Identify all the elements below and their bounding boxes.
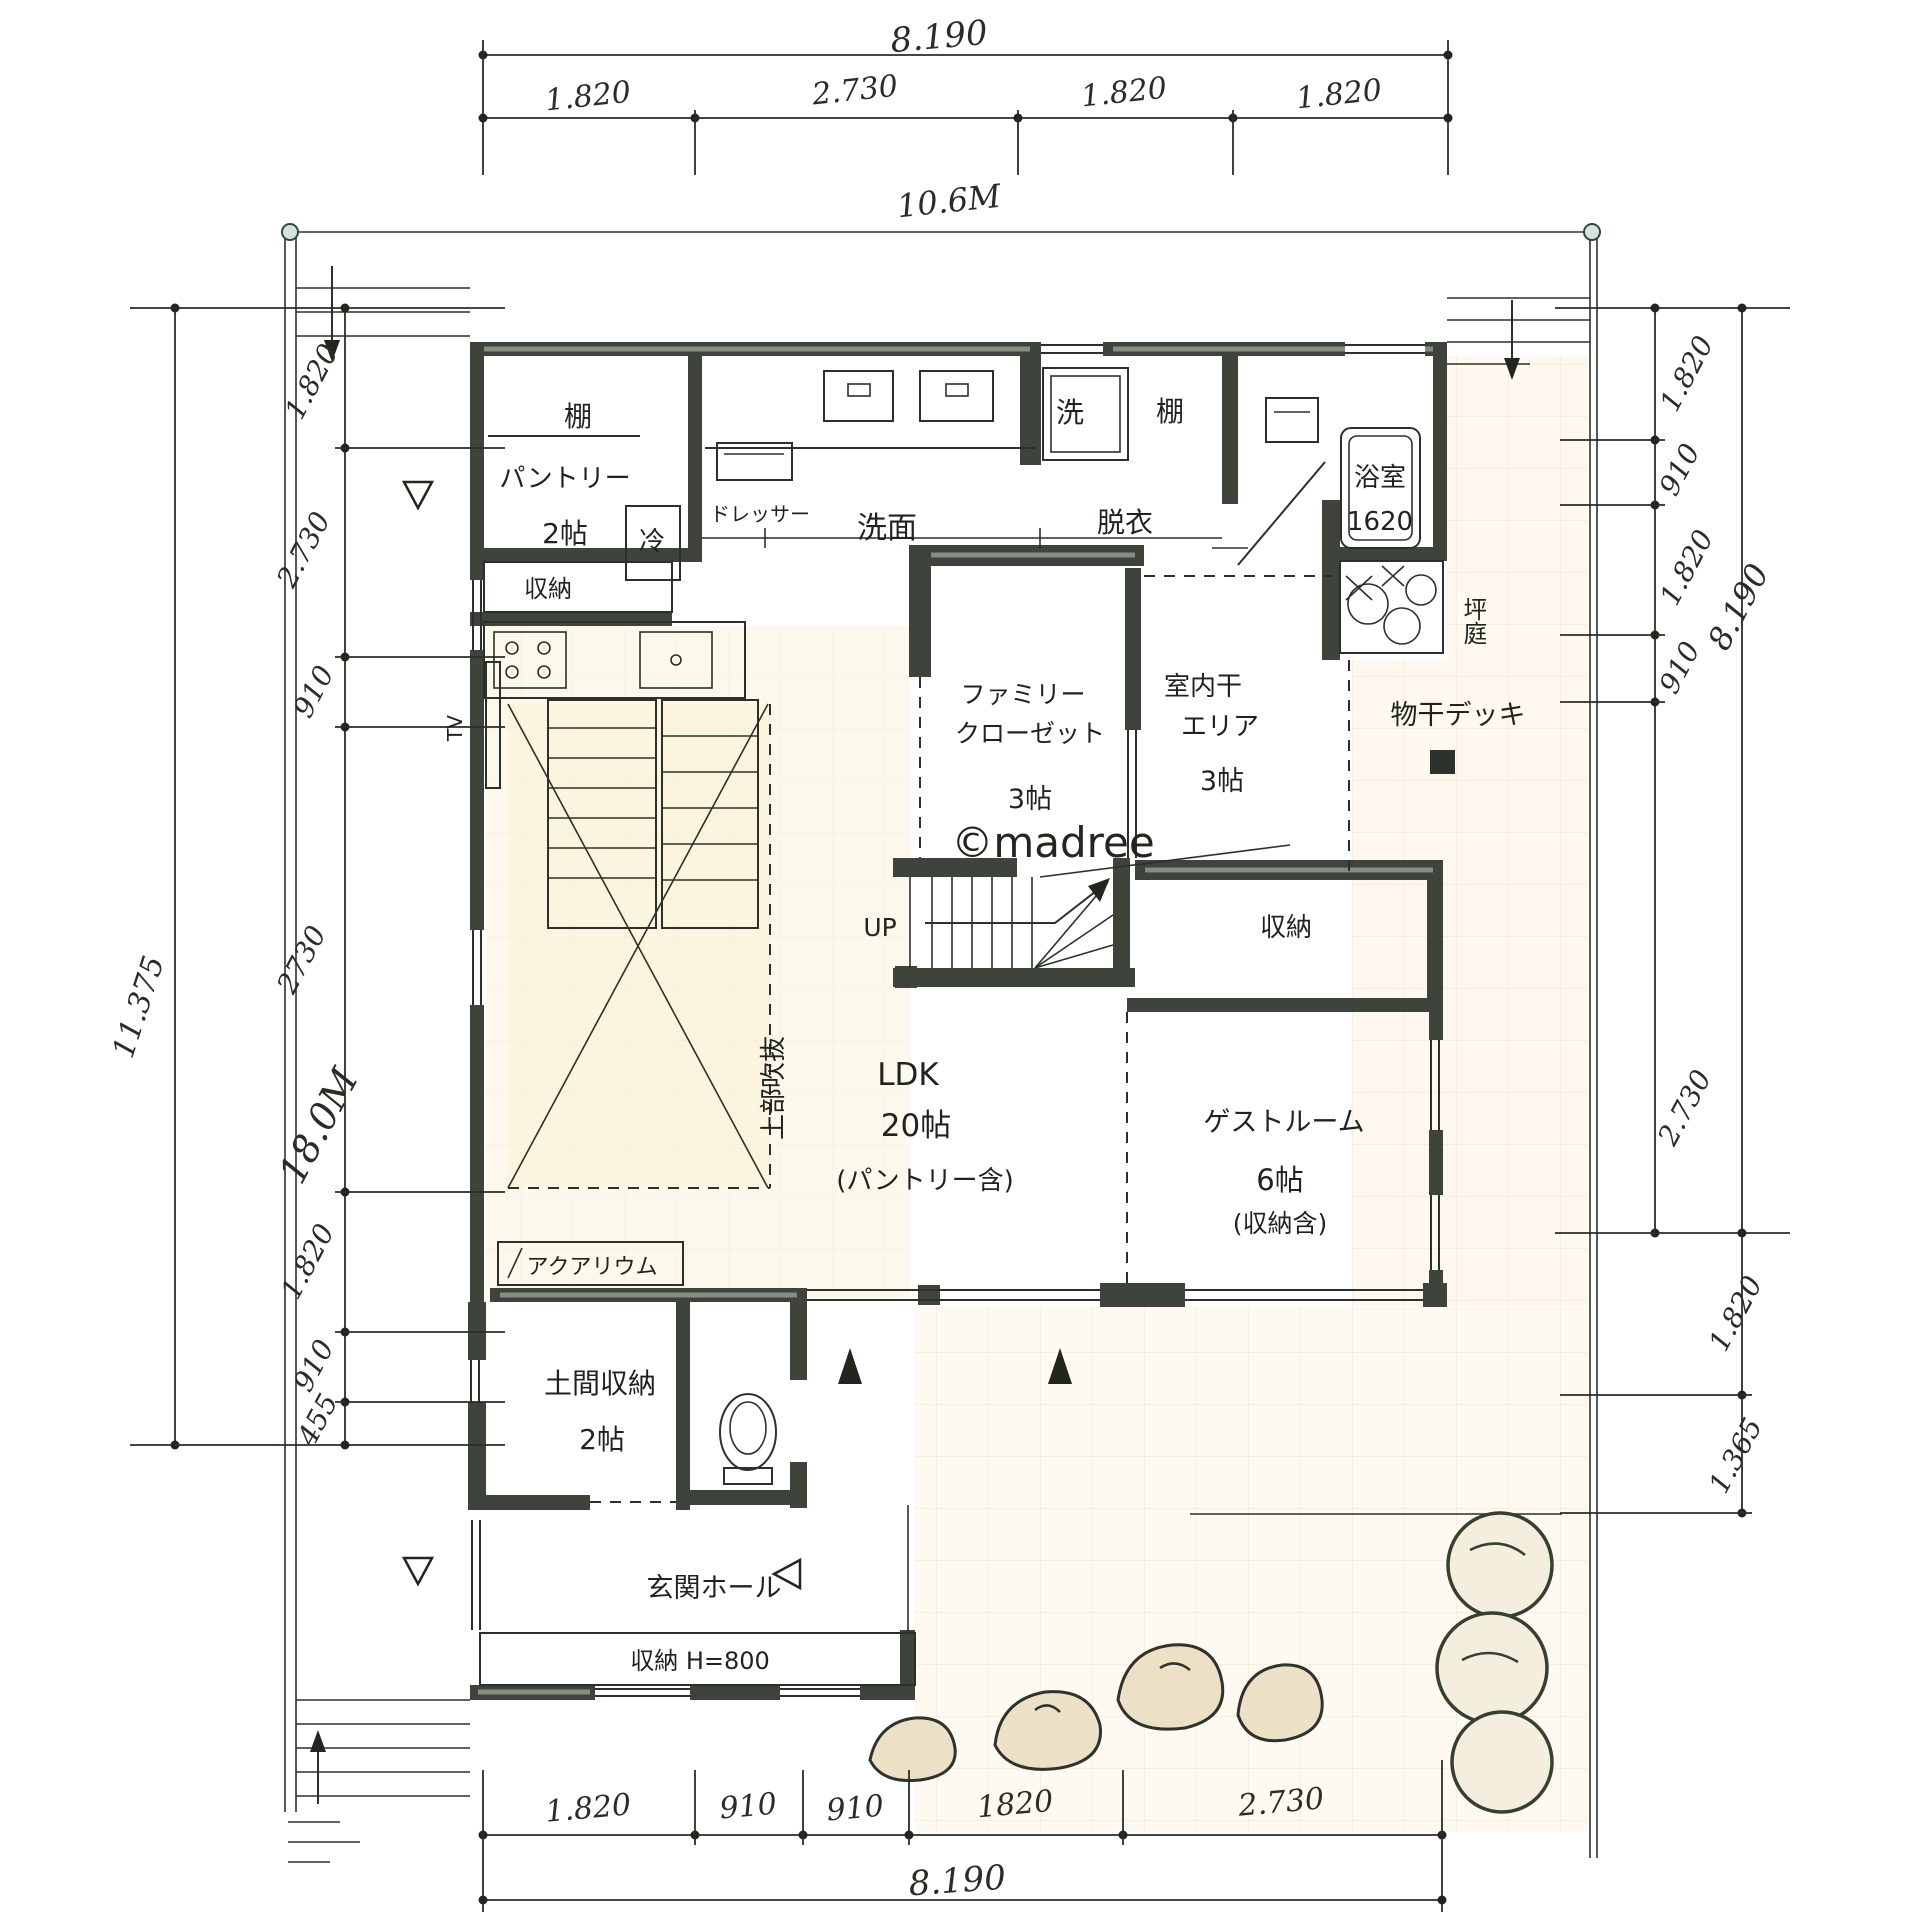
room-label-entrance-hall: 玄関ホール (647, 1573, 782, 1604)
room-label-storage-pantry: 収納 (524, 575, 572, 603)
room-label-courtyard: 坪庭 (1446, 566, 1486, 676)
room-label-doma-size: 2帖 (579, 1423, 625, 1456)
section-marker-icon (404, 482, 432, 508)
room-label-indoor-drying-1: 室内干 (1164, 672, 1242, 702)
room-label-shelf-pantry: 棚 (564, 400, 592, 433)
room-label-family-closet-size: 3帖 (1008, 784, 1052, 815)
bush (1452, 1712, 1552, 1812)
approach-arrow-bottom-left-icon (310, 1730, 326, 1752)
room-label-doma: 土間収納 (544, 1367, 656, 1400)
room-label-fridge: 冷 (639, 527, 665, 557)
room-label-aquarium: アクアリウム (527, 1255, 658, 1280)
toilet-icon (720, 1394, 776, 1484)
floor-tints (486, 356, 1588, 1832)
room-label-storage-stairs: 収納 (1260, 913, 1312, 943)
dim-right-lower-seg-1: 1.820 (1702, 1270, 1769, 1356)
dim-left-seg-1: 1.820 (278, 338, 345, 424)
floor-plan-drawing: 8.190 1.820 2.730 1.820 1.820 10.6M 1.82… (0, 0, 1912, 1912)
room-label-ldk-size: 20帖 (881, 1108, 951, 1144)
bath-door-leaf (1238, 462, 1325, 565)
dim-bottom-seg-3: 910 (825, 1789, 885, 1829)
section-marker-icon (404, 1558, 432, 1584)
dim-left-seg-4: 2730 (270, 920, 333, 999)
dim-top-seg-4: 1.820 (1294, 73, 1383, 117)
dim-right-seg-5: 2.730 (1651, 1064, 1718, 1151)
room-label-family-closet-1: ファミリー (960, 680, 1085, 709)
pantry-storage-strip (484, 562, 672, 612)
room-label-stairs-up: UP (863, 913, 896, 942)
dim-top-total: 8.190 (889, 13, 989, 61)
rock (870, 1718, 955, 1781)
dim-left-seg-7: 455 (290, 1388, 345, 1452)
room-label-shelf-right: 棚 (1156, 395, 1184, 428)
dim-left-seg-2: 2.730 (270, 506, 337, 593)
dim-right-total: 8.190 (1700, 557, 1777, 656)
dim-bottom-seg-1: 1.820 (544, 1787, 633, 1829)
room-label-washroom: 洗面 (857, 511, 917, 546)
room-label-courtyard-wrap: 坪庭 (1446, 566, 1486, 676)
dim-left-total: 11.375 (106, 952, 172, 1063)
room-label-pantry-size: 2帖 (542, 517, 588, 550)
room-label-washer: 洗 (1056, 396, 1084, 429)
room-label-undressing: 脱衣 (1097, 506, 1153, 539)
courtyard-plants-icon (1346, 566, 1436, 644)
dim-right-seg-1: 1.820 (1653, 330, 1720, 416)
dim-top-seg-3: 1.820 (1079, 71, 1168, 115)
room-label-guest-size: 6帖 (1256, 1163, 1303, 1197)
section-marker-icon (838, 1348, 862, 1384)
room-label-pantry: パントリー (499, 464, 630, 494)
dim-top-seg-2: 2.730 (809, 69, 899, 113)
room-label-ldk: LDK (877, 1057, 939, 1093)
room-label-indoor-drying-2: エリア (1181, 712, 1259, 742)
dim-right-seg-3: 1.820 (1653, 524, 1720, 610)
room-label-bath: 浴室 (1354, 463, 1406, 493)
bush (1437, 1613, 1547, 1723)
dim-right-lower-seg-2: 1.365 (1702, 1412, 1769, 1498)
room-label-ldk-note: (パントリー含) (836, 1166, 1014, 1196)
dim-bottom-seg-2: 910 (718, 1787, 778, 1827)
site-width-label: 10.6M (895, 177, 1004, 226)
floor-plan-page: 8.190 1.820 2.730 1.820 1.820 10.6M 1.82… (0, 0, 1912, 1912)
room-label-entrance-storage: 収納 H=800 (630, 1647, 770, 1675)
room-label-indoor-drying-size: 3帖 (1200, 766, 1244, 797)
room-label-dresser: ドレッサー (710, 502, 810, 526)
room-label-guest-note: (収納含) (1233, 1209, 1328, 1238)
undressing-cabinet-box (1266, 398, 1318, 442)
room-label-void-above: 上部吹抜 (759, 1036, 789, 1140)
dim-bottom-total: 8.190 (907, 1858, 1007, 1905)
deck-post (1430, 750, 1455, 774)
dim-bottom-seg-4: 1820 (976, 1784, 1055, 1826)
stairs-up-arrow-icon (1088, 878, 1110, 902)
watermark: ©madree (951, 818, 1154, 867)
bush (1448, 1513, 1552, 1617)
room-label-tv: TV (443, 715, 467, 742)
dim-top-seg-1: 1.820 (543, 75, 632, 119)
room-label-drying-deck: 物干デッキ (1391, 700, 1526, 731)
room-label-bath-size: 1620 (1347, 507, 1413, 537)
dim-left-seg-6: 910 (286, 1334, 340, 1397)
dim-left-seg-3: 910 (286, 660, 340, 723)
room-label-guest: ゲストルーム (1203, 1107, 1364, 1138)
dim-right-seg-2: 910 (1652, 438, 1706, 501)
room-label-family-closet-2: クローゼット (955, 719, 1105, 748)
dim-right-seg-4: 910 (1652, 636, 1706, 699)
